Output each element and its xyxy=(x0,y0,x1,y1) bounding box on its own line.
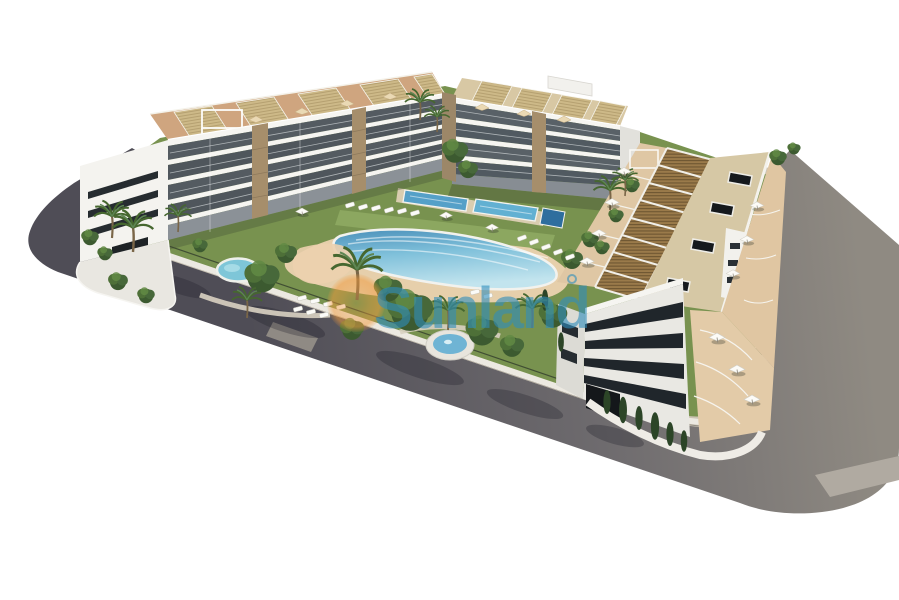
stone-pillar xyxy=(252,123,268,219)
architectural-render: Sunland xyxy=(0,0,899,600)
watermark-text: Sunland xyxy=(374,276,589,341)
stone-joint xyxy=(442,92,456,182)
stone-pillar xyxy=(532,111,546,193)
render-image: Sunland xyxy=(0,0,899,600)
stone-pillar xyxy=(352,107,366,194)
